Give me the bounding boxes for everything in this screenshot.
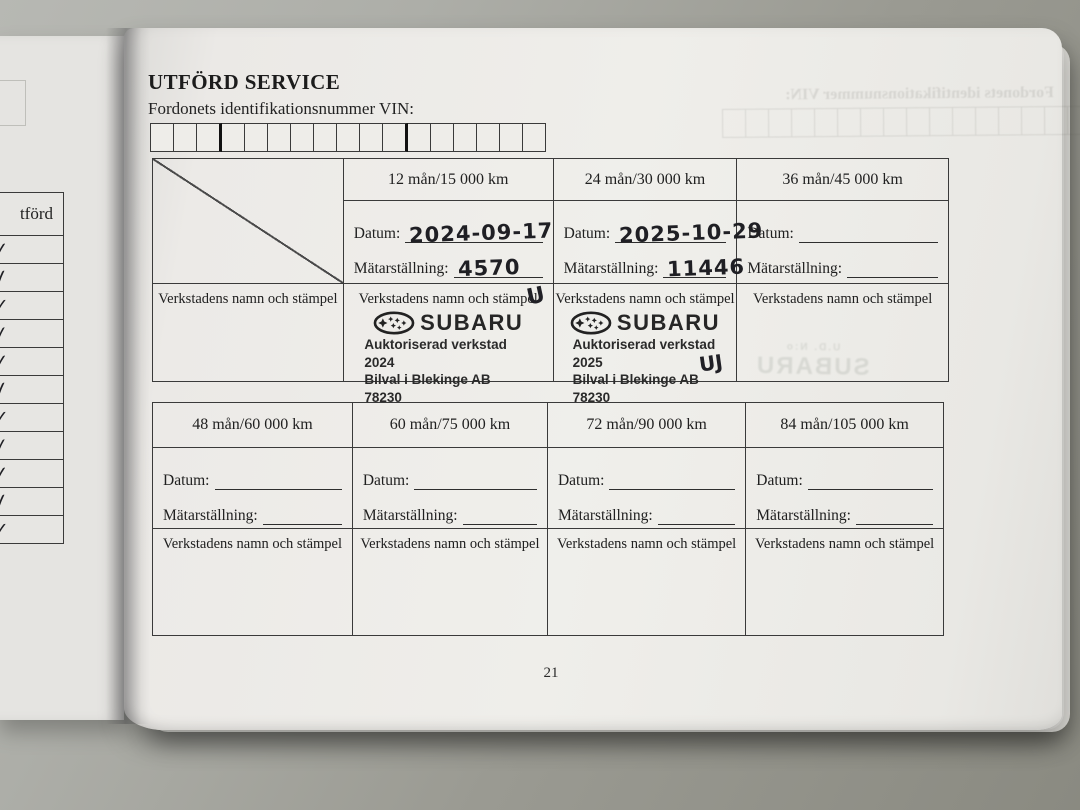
checkmark: ✓: [0, 462, 10, 486]
odometer-label: Mätarställning:: [756, 507, 851, 525]
odometer-label: Mätarställning:: [354, 260, 449, 278]
vin-cell: [197, 123, 222, 152]
ghost-vin-cell: [952, 107, 975, 136]
subaru-stamp-2024: SUBARU Auktoriserad verkstad 2024 Bilval…: [356, 310, 540, 406]
subaru-logo-icon: [373, 311, 415, 335]
ghost-vin-row: [554, 106, 1080, 140]
odometer-line: [463, 504, 537, 525]
interval-header: 84 mån/105 000 km: [746, 403, 943, 448]
stamp-brand: SUBARU: [420, 310, 523, 336]
checkmark: ✓: [0, 350, 10, 374]
service-entry-36m: Datum: Mätarställning:: [737, 201, 948, 284]
vin-cell: [523, 123, 546, 152]
pen-initials: UJ: [697, 349, 724, 376]
stamp-brand: SUBARU: [617, 310, 720, 336]
checkmark-cell: ✓: [0, 292, 63, 320]
ghost-vin-cell: [906, 107, 929, 136]
datum-label: Datum:: [564, 225, 611, 243]
datum-label: Datum:: [363, 472, 410, 490]
ghost-vin-cell: [883, 107, 906, 136]
diagonal-cell: [153, 159, 344, 284]
ghost-vin-cell: [1021, 106, 1044, 135]
vin-cell: [222, 123, 245, 152]
odometer-line: 4570: [454, 257, 543, 278]
page-title: UTFÖRD SERVICE: [148, 70, 340, 95]
vin-cell: [150, 123, 174, 152]
vin-cell: [337, 123, 360, 152]
service-entry-48m: Datum: Mätarställning:: [153, 448, 353, 529]
checkmark-cell: ✓: [0, 460, 63, 488]
datum-line: 2024-09-17: [405, 222, 542, 243]
odometer-label: Mätarställning:: [564, 260, 659, 278]
vin-cell: [291, 123, 314, 152]
vin-cell: [174, 123, 197, 152]
odometer-line: 11446: [663, 257, 726, 278]
subaru-logo-icon: [570, 311, 612, 335]
odometer-label: Mätarställning:: [363, 507, 458, 525]
odometer-label: Mätarställning:: [558, 507, 653, 525]
checkmark: ✓: [0, 518, 9, 541]
vin-cell: [314, 123, 337, 152]
service-entry-60m: Datum: Mätarställning:: [353, 448, 548, 529]
interval-header: 48 mån/60 000 km: [153, 403, 353, 448]
checkmark-cell: ✓: [0, 236, 63, 264]
service-table-2: 48 mån/60 000 km 60 mån/75 000 km 72 mån…: [152, 402, 944, 636]
checkmark: ✓: [0, 488, 12, 515]
service-table-1: 12 mån/15 000 km 24 mån/30 000 km 36 mån…: [152, 158, 949, 382]
workshop-cell: Verkstadens namn och stämpel: [153, 284, 344, 381]
datum-label: Datum:: [354, 225, 401, 243]
checkmark: ✓: [0, 264, 12, 291]
workshop-label: Verkstadens namn och stämpel: [746, 536, 943, 553]
vin-cell: [360, 123, 383, 152]
vin-cell: [454, 123, 477, 152]
vin-cell: [431, 123, 454, 152]
interval-header: 12 mån/15 000 km: [344, 159, 554, 201]
checkmark-table: tförd ✓✓✓✓✓✓✓✓✓✓✓: [0, 192, 64, 544]
workshop-label: Verkstadens namn och stämpel: [153, 291, 343, 308]
checkmark-column: ✓✓✓✓✓✓✓✓✓✓✓: [0, 236, 63, 543]
handwritten-odometer: 4570: [457, 255, 520, 281]
checkmark: ✓: [0, 406, 9, 429]
workshop-cell: Verkstadens namn och stämpel: [746, 529, 943, 635]
ghost-vin-cell: [1067, 106, 1080, 135]
odometer-label: Mätarställning:: [163, 507, 258, 525]
ghost-vin-cell: [975, 107, 998, 136]
datum-line: [799, 222, 938, 243]
ghost-stamp: U.D. N:o SUBARU: [755, 341, 870, 382]
handwritten-odometer: 11446: [667, 255, 746, 282]
ghost-vin-cell: [1044, 106, 1067, 135]
workshop-cell: Verkstadens namn och stämpel: [548, 529, 746, 635]
checkmark-cell: ✓: [0, 320, 63, 348]
ghost-vin-label: Fordonets identifikationsnummer VIN:: [554, 84, 1054, 106]
workshop-cell-12m: Verkstadens namn och stämpel U: [344, 284, 554, 381]
left-page: tförd ✓✓✓✓✓✓✓✓✓✓✓: [0, 36, 124, 720]
datum-line: [215, 469, 342, 490]
datum-label: Datum:: [558, 472, 605, 490]
odometer-line: [658, 504, 736, 525]
checkmark-cell: ✓: [0, 376, 63, 404]
workshop-cell-36m: Verkstadens namn och stämpel U.D. N:o SU…: [737, 284, 948, 381]
ghost-vin-cell: [722, 109, 745, 138]
show-through-ghost: Fordonets identifikationsnummer VIN:: [554, 84, 1080, 140]
vin-cell: [500, 123, 523, 152]
checkmark-cell: ✓: [0, 432, 63, 460]
interval-header: 60 mån/75 000 km: [353, 403, 548, 448]
datum-line: [414, 469, 537, 490]
interval-header: 72 mån/90 000 km: [548, 403, 746, 448]
workshop-label: Verkstadens namn och stämpel: [353, 536, 547, 553]
workshop-cell: Verkstadens namn och stämpel: [153, 529, 353, 635]
datum-line: 2025-10-29: [615, 222, 726, 243]
vin-label: Fordonets identifikationsnummer VIN:: [148, 99, 414, 119]
stamp-line-1: Auktoriserad verkstad 2024: [364, 336, 540, 371]
service-entry-12m: Datum: 2024-09-17 Mätarställning: 4570: [344, 201, 554, 284]
odometer-line: [847, 257, 938, 278]
checkmark: ✓: [0, 376, 12, 403]
workshop-label: Verkstadens namn och stämpel: [548, 536, 745, 553]
workshop-cell: Verkstadens namn och stämpel: [353, 529, 548, 635]
handwritten-date: 2024-09-17: [409, 218, 554, 247]
left-page-table-fragment: [0, 80, 26, 126]
page-number: 21: [521, 665, 581, 682]
workshop-label: Verkstadens namn och stämpel: [737, 291, 948, 308]
vin-cell: [268, 123, 291, 152]
checkmark-cell: ✓: [0, 516, 63, 543]
workshop-label: Verkstadens namn och stämpel: [344, 291, 553, 308]
odometer-label: Mätarställning:: [747, 260, 842, 278]
workshop-label: Verkstadens namn och stämpel: [153, 536, 352, 553]
ghost-vin-cell: [998, 106, 1021, 135]
checkmark-cell: ✓: [0, 404, 63, 432]
checkmark-cell: ✓: [0, 348, 63, 376]
datum-label: Datum:: [163, 472, 210, 490]
workshop-cell-24m: Verkstadens namn och stämpel SUBARU: [554, 284, 738, 381]
vin-cell: [477, 123, 500, 152]
datum-line: [808, 469, 933, 490]
stamp-line-2: Bilval i Blekinge AB: [364, 371, 540, 389]
checkmark: ✓: [0, 321, 11, 345]
checkmark: ✓: [0, 433, 11, 457]
datum-line: [609, 469, 735, 490]
ghost-vin-cell: [791, 108, 814, 137]
odometer-line: [856, 504, 933, 525]
workshop-label: Verkstadens namn och stämpel: [554, 291, 737, 308]
vin-cell: [383, 123, 408, 152]
service-entry-84m: Datum: Mätarställning:: [746, 448, 943, 529]
interval-header: 36 mån/45 000 km: [737, 159, 948, 201]
service-entry-72m: Datum: Mätarställning:: [548, 448, 746, 529]
datum-label: Datum:: [747, 225, 794, 243]
checkmark: ✓: [0, 238, 10, 262]
datum-label: Datum:: [756, 472, 803, 490]
ghost-vin-cell: [860, 108, 883, 137]
ghost-vin-cell: [768, 108, 791, 137]
checkmark-cell: ✓: [0, 264, 63, 292]
service-entry-24m: Datum: 2025-10-29 Mätarställning: 11446: [554, 201, 738, 284]
odometer-line: [263, 504, 342, 525]
ghost-vin-cell: [929, 107, 952, 136]
desk-surface: tförd ✓✓✓✓✓✓✓✓✓✓✓ Fordonets identifikati…: [0, 0, 1080, 810]
checkmark: ✓: [0, 294, 9, 317]
checkmark-cell: ✓: [0, 488, 63, 516]
ghost-stamp-brand: SUBARU: [755, 352, 870, 382]
vin-cell: [408, 123, 431, 152]
ghost-vin-cell: [745, 109, 768, 138]
ghost-vin-cell: [837, 108, 860, 137]
checkmark-column-header: tförd: [0, 193, 63, 236]
service-page: Fordonets identifikationsnummer VIN: UTF…: [124, 28, 1062, 730]
interval-header: 24 mån/30 000 km: [554, 159, 738, 201]
vin-cell: [245, 123, 268, 152]
ghost-vin-cell: [814, 108, 837, 137]
vin-box-row: [150, 123, 546, 150]
